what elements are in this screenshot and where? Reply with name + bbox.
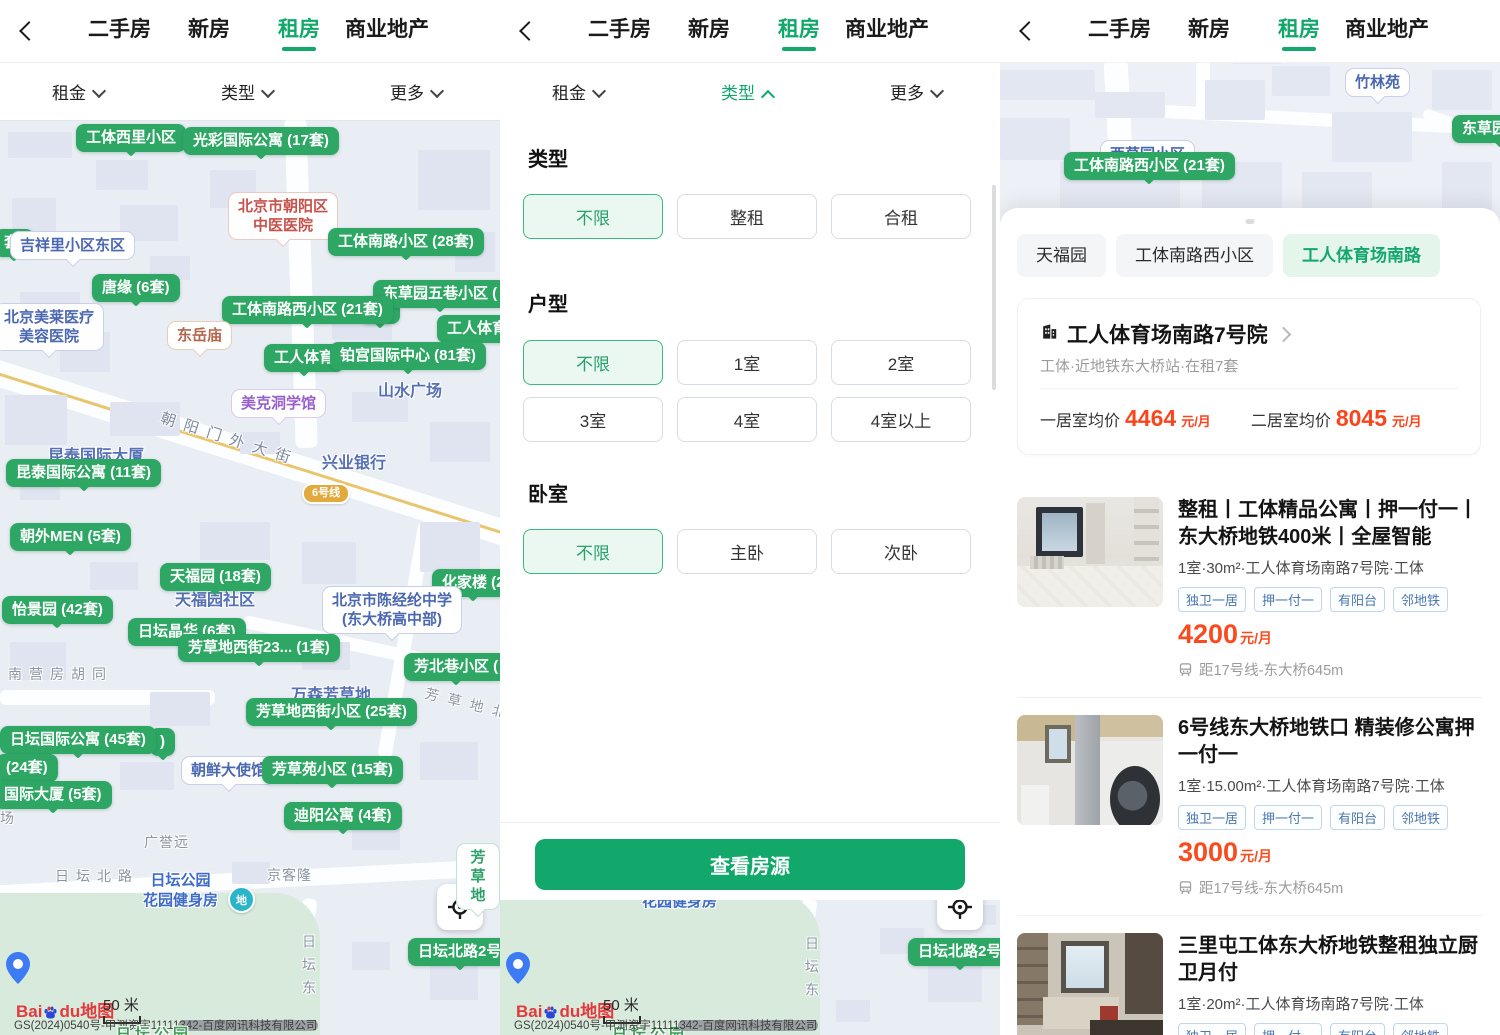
chip-gongti-nanlu-xi[interactable]: 工体南路西小区 bbox=[1116, 234, 1273, 277]
map-building bbox=[200, 522, 270, 560]
tag: 邻地铁 bbox=[1393, 1023, 1448, 1035]
listing-specs: 1室·15.00m²·工人体育场南路7号院·工体 bbox=[1178, 775, 1483, 796]
map-listing-label[interactable]: 怡景园 (42套) bbox=[2, 596, 113, 624]
map-building bbox=[232, 862, 270, 884]
map-listing-label[interactable]: 芳草苑小区 (15套) bbox=[262, 756, 403, 784]
listing-specs: 1室·20m²·工人体育场南路7号院·工体 bbox=[1178, 993, 1483, 1014]
panel-map: 地 Baidu地图 50 米 GS(2024)0540号-甲测资宇1111134… bbox=[0, 0, 500, 1035]
app: 地 Baidu地图 50 米 GS(2024)0540号-甲测资宇1111134… bbox=[0, 0, 1500, 1035]
tab-ershoufang[interactable]: 二手房 bbox=[88, 0, 151, 60]
tab-shangye[interactable]: 商业地产 bbox=[345, 0, 429, 60]
tag: 押一付一 bbox=[1254, 1023, 1322, 1035]
listing-metro: 距17号线-东大桥645m bbox=[1178, 877, 1483, 898]
map-building bbox=[430, 422, 490, 462]
map-listing-label[interactable]: 昆泰国际公寓 (11套) bbox=[6, 459, 161, 487]
tab-ershoufang[interactable]: 二手房 bbox=[588, 0, 651, 60]
top-nav: 二手房 新房 租房 商业地产 bbox=[1000, 0, 1500, 63]
filter-type-active[interactable]: 类型 bbox=[721, 79, 773, 104]
map-listing-label[interactable]: 工体南路西小区 (21套) bbox=[222, 296, 393, 324]
price-stats: 一居室均价4464元/月 二居室均价8045元/月 bbox=[1040, 405, 1422, 432]
top-nav: 二手房 新房 租房 商业地产 bbox=[500, 0, 1000, 63]
map-text: 山水广场 bbox=[378, 377, 442, 401]
map-poi-label[interactable]: 北京市朝阳区 中医医院 bbox=[228, 192, 338, 240]
stat-label: 一居室均价 bbox=[1040, 407, 1120, 431]
option-type-shared[interactable]: 合租 bbox=[831, 194, 971, 239]
map-text: 广誉远 bbox=[144, 832, 189, 852]
chevron-up-icon bbox=[761, 89, 775, 103]
listing-title: 整租丨工体精品公寓丨押一付一丨东大桥地铁400米丨全屋智能 bbox=[1178, 497, 1483, 551]
back-icon[interactable] bbox=[19, 21, 39, 41]
tab-xinfang[interactable]: 新房 bbox=[688, 0, 730, 60]
chip-gongrentiyuchang-nanlu[interactable]: 工人体育场南路 bbox=[1283, 234, 1440, 277]
map-listing-label[interactable]: 东草园五巷 bbox=[1452, 115, 1500, 143]
map-building bbox=[1095, 92, 1165, 118]
map-building bbox=[420, 742, 478, 780]
stat-unit: 元/月 bbox=[1181, 411, 1211, 430]
map-text: 日坛东 bbox=[299, 934, 319, 1003]
map-listing-label[interactable]: 日坛北路2号 bbox=[908, 938, 1000, 966]
map-listing-label[interactable]: 迪阳公寓 (4套) bbox=[284, 802, 402, 830]
panel-filter: Baidu地图 50 米 GS(2024)0540号-甲测资宇11111342-… bbox=[500, 0, 1000, 1035]
option-bedroom-unlimited[interactable]: 不限 bbox=[523, 529, 663, 574]
chevron-right-icon bbox=[1275, 326, 1291, 342]
map-canvas[interactable]: 地 Baidu地图 50 米 GS(2024)0540号-甲测资宇1111134… bbox=[0, 0, 500, 1035]
community-summary-card[interactable]: 工人体育场南路7号院 工体·近地铁东大桥站·在租7套 一居室均价4464元/月 … bbox=[1017, 298, 1481, 455]
map-poi-label[interactable]: 北京市陈经纶中学 (东大桥高中部) bbox=[322, 586, 462, 634]
subway-station-icon[interactable]: 地 bbox=[228, 886, 255, 913]
option-type-unlimited[interactable]: 不限 bbox=[523, 194, 663, 239]
tag: 邻地铁 bbox=[1393, 805, 1448, 830]
tag: 有阳台 bbox=[1330, 1023, 1385, 1035]
map-building bbox=[90, 562, 138, 590]
map-poi-label[interactable]: 芳草地 bbox=[456, 843, 500, 910]
panel-listings: 西草园小区竹林苑东草园五巷工体南路西小区 (21套) 二手房 新房 租房 商业地… bbox=[1000, 0, 1500, 1035]
map-building bbox=[1332, 112, 1412, 162]
filter-rent[interactable]: 租金 bbox=[552, 79, 604, 104]
stat-unit: 元/月 bbox=[1392, 411, 1422, 430]
listings-sheet: 天福园 工体南路西小区 工人体育场南路 工人体育场南路7号院 工体·近地铁东大桥… bbox=[1000, 208, 1500, 1035]
community-chips: 天福园 工体南路西小区 工人体育场南路 bbox=[1017, 234, 1500, 278]
map-poi-label[interactable]: 东岳庙 bbox=[167, 321, 232, 350]
filter-type[interactable]: 类型 bbox=[221, 79, 273, 104]
listing-metro: 距17号线-东大桥645m bbox=[1178, 659, 1483, 680]
filter-more[interactable]: 更多 bbox=[390, 79, 442, 104]
map-building bbox=[1272, 66, 1330, 96]
map-text: 场 bbox=[0, 808, 15, 828]
tag: 押一付一 bbox=[1254, 587, 1322, 612]
map-listing-label[interactable]: 工体南路小区 (28套) bbox=[328, 228, 484, 256]
listing-title: 6号线东大桥地铁口 精装修公寓押一付一 bbox=[1178, 715, 1483, 769]
tag: 有阳台 bbox=[1330, 587, 1385, 612]
tab-ershoufang[interactable]: 二手房 bbox=[1088, 0, 1151, 60]
scrollbar[interactable] bbox=[992, 185, 996, 390]
chip-tianfuyuan[interactable]: 天福园 bbox=[1017, 234, 1106, 277]
back-icon[interactable] bbox=[1019, 21, 1039, 41]
tag: 押一付一 bbox=[1254, 805, 1322, 830]
listing-item[interactable]: 三里屯工体东大桥地铁整租独立厨卫月付 1室·20m²·工人体育场南路7号院·工体… bbox=[1017, 916, 1483, 1035]
section-title-layout: 户型 bbox=[528, 288, 568, 317]
listing-tags: 独卫一居 押一付一 有阳台 邻地铁 bbox=[1178, 587, 1483, 612]
sheet-drag-handle[interactable] bbox=[1246, 219, 1255, 224]
map-listing-label[interactable]: 日坛国际公寓 (45套) bbox=[0, 726, 156, 754]
listing-list: 整租丨工体精品公寓丨押一付一丨东大桥地铁400米丨全屋智能 1室·30m²·工人… bbox=[1017, 480, 1483, 1035]
tab-zufang[interactable]: 租房 bbox=[278, 0, 320, 60]
option-layout-1room[interactable]: 1室 bbox=[677, 340, 817, 385]
divider bbox=[1040, 388, 1458, 389]
tab-shangye[interactable]: 商业地产 bbox=[1345, 0, 1429, 60]
listing-photo bbox=[1017, 497, 1163, 607]
map-listing-label[interactable]: 工体西里小区 bbox=[76, 124, 186, 152]
option-bedroom-master[interactable]: 主卧 bbox=[677, 529, 817, 574]
tab-xinfang[interactable]: 新房 bbox=[1188, 0, 1230, 60]
divider bbox=[500, 822, 1000, 823]
map-building bbox=[120, 762, 174, 790]
chevron-down-icon bbox=[92, 83, 106, 97]
map-listing-label[interactable]: 日坛北路2号 bbox=[408, 938, 500, 966]
tag: 独卫一居 bbox=[1178, 805, 1246, 830]
map-text: 南营房胡同 bbox=[8, 664, 113, 684]
map-listing-label[interactable]: 铂宫国际中心 (81套) bbox=[330, 342, 486, 370]
map-poi-label[interactable]: 吉祥里小区东区 bbox=[10, 231, 135, 260]
listing-price: 3000元/月 bbox=[1178, 837, 1483, 868]
tab-xinfang[interactable]: 新房 bbox=[188, 0, 230, 60]
map-building bbox=[1432, 70, 1492, 110]
map-text: 日坛东 bbox=[802, 936, 822, 1005]
stat-label: 二居室均价 bbox=[1251, 407, 1331, 431]
option-layout-3room[interactable]: 3室 bbox=[523, 397, 663, 442]
map-listing-label[interactable]: 芳草地西街23... (1套) bbox=[178, 634, 340, 662]
listing-title: 三里屯工体东大桥地铁整租独立厨卫月付 bbox=[1178, 933, 1483, 987]
tag: 有阳台 bbox=[1330, 805, 1385, 830]
tag: 邻地铁 bbox=[1393, 587, 1448, 612]
filter-bar: 租金 类型 更多 bbox=[500, 62, 1000, 120]
option-layout-4room[interactable]: 4室 bbox=[677, 397, 817, 442]
tag: 独卫一居 bbox=[1178, 1023, 1246, 1035]
metro-line-badge: 6号线 bbox=[302, 483, 350, 504]
stat-value: 8045 bbox=[1336, 405, 1387, 432]
map-listing-label[interactable]: 芳北巷小区 ( bbox=[404, 653, 500, 681]
listing-price: 4200元/月 bbox=[1178, 619, 1483, 650]
listing-item[interactable]: 6号线东大桥地铁口 精装修公寓押一付一 1室·15.00m²·工人体育场南路7号… bbox=[1017, 698, 1483, 916]
option-layout-2room[interactable]: 2室 bbox=[831, 340, 971, 385]
map-poi-label[interactable]: 北京美莱医疗 美容医院 bbox=[0, 303, 104, 351]
building-icon bbox=[1040, 322, 1059, 346]
section-title-bedroom: 卧室 bbox=[528, 478, 568, 507]
map-attribution: GS(2024)0540号-甲测资宇11111342-百度网讯科技有限公司 bbox=[514, 1017, 817, 1033]
option-layout-4plus[interactable]: 4室以上 bbox=[831, 397, 971, 442]
map-building bbox=[430, 962, 478, 1000]
map-pin-icon bbox=[505, 951, 531, 990]
filter-sheet: 租金 类型 更多 类型 不限 整租 合租 户型 不限 1室 2室 3室 4室 4… bbox=[500, 62, 1000, 900]
listing-specs: 1室·30m²·工人体育场南路7号院·工体 bbox=[1178, 557, 1483, 578]
top-nav: 二手房 新房 租房 商业地产 bbox=[0, 0, 500, 63]
map-building bbox=[1442, 162, 1492, 212]
train-icon bbox=[1178, 880, 1193, 895]
chevron-down-icon bbox=[261, 83, 275, 97]
tab-shangye[interactable]: 商业地产 bbox=[845, 0, 929, 60]
listing-photo bbox=[1017, 715, 1163, 825]
map-listing-label[interactable]: 国际大厦 (5套) bbox=[0, 781, 112, 809]
map-road bbox=[1128, 103, 1468, 134]
map-listing-label[interactable]: 唐缘 (6套) bbox=[92, 274, 180, 302]
listing-photo bbox=[1017, 933, 1163, 1035]
map-poi-label[interactable]: 美克洞学馆 bbox=[231, 389, 326, 418]
map-listing-label[interactable]: 朝外MEN (5套) bbox=[10, 523, 131, 551]
listing-item[interactable]: 整租丨工体精品公寓丨押一付一丨东大桥地铁400米丨全屋智能 1室·30m²·工人… bbox=[1017, 480, 1483, 698]
map-building bbox=[1000, 118, 1070, 160]
map-building bbox=[5, 395, 67, 445]
map-building bbox=[8, 132, 72, 158]
listing-tags: 独卫一居 押一付一 有阳台 邻地铁 bbox=[1178, 1023, 1483, 1035]
map-text: 日坛北路 bbox=[55, 866, 139, 886]
listing-tags: 独卫一居 押一付一 有阳台 邻地铁 bbox=[1178, 805, 1483, 830]
community-title: 工人体育场南路7号院 bbox=[1067, 319, 1268, 349]
map-listing-label[interactable]: 天福园 (18套) bbox=[160, 563, 271, 591]
back-icon[interactable] bbox=[519, 21, 539, 41]
filter-bar: 租金 类型 更多 bbox=[0, 62, 500, 120]
map-text: 日坛公园 bbox=[116, 1023, 192, 1035]
chevron-down-icon bbox=[930, 83, 944, 97]
tab-zufang[interactable]: 租房 bbox=[778, 0, 820, 60]
map-text: 京客隆 bbox=[267, 865, 312, 885]
map-text: 日坛公园 花园健身房 bbox=[143, 871, 218, 911]
stat-value: 4464 bbox=[1125, 405, 1176, 432]
map-building bbox=[1205, 80, 1265, 120]
option-bedroom-second[interactable]: 次卧 bbox=[831, 529, 971, 574]
map-listing-label[interactable]: 工体南路西小区 (21套) bbox=[1064, 152, 1235, 180]
community-subtitle: 工体·近地铁东大桥站·在租7套 bbox=[1040, 355, 1238, 376]
map-building bbox=[420, 522, 480, 572]
map-building bbox=[1000, 70, 1095, 100]
map-building bbox=[302, 542, 356, 584]
option-layout-unlimited[interactable]: 不限 bbox=[523, 340, 663, 385]
filter-more[interactable]: 更多 bbox=[890, 79, 942, 104]
map-building bbox=[352, 942, 390, 970]
map-building bbox=[96, 160, 148, 190]
option-type-whole[interactable]: 整租 bbox=[677, 194, 817, 239]
map-text: 兴业银行 bbox=[322, 449, 386, 473]
map-listing-label[interactable]: (24套) bbox=[0, 754, 58, 782]
view-listings-button[interactable]: 查看房源 bbox=[535, 839, 965, 890]
chevron-down-icon bbox=[592, 83, 606, 97]
map-pin-icon bbox=[5, 951, 31, 990]
tag: 独卫一居 bbox=[1178, 587, 1246, 612]
map-text: 芳草地北 bbox=[423, 683, 500, 725]
filter-rent[interactable]: 租金 bbox=[52, 79, 104, 104]
map-building bbox=[150, 692, 210, 726]
tab-zufang[interactable]: 租房 bbox=[1278, 0, 1320, 60]
chevron-down-icon bbox=[430, 83, 444, 97]
map-poi-label[interactable]: 竹林苑 bbox=[1345, 68, 1410, 97]
map-building bbox=[836, 1000, 870, 1022]
map-listing-label[interactable]: 芳草地西街小区 (25套) bbox=[246, 698, 417, 726]
map-listing-label[interactable]: 工人体育 bbox=[437, 315, 500, 343]
train-icon bbox=[1178, 662, 1193, 677]
map-listing-label[interactable]: 光彩国际公寓 (17套) bbox=[183, 127, 339, 155]
section-title-type: 类型 bbox=[528, 143, 568, 172]
map-building bbox=[418, 150, 490, 210]
